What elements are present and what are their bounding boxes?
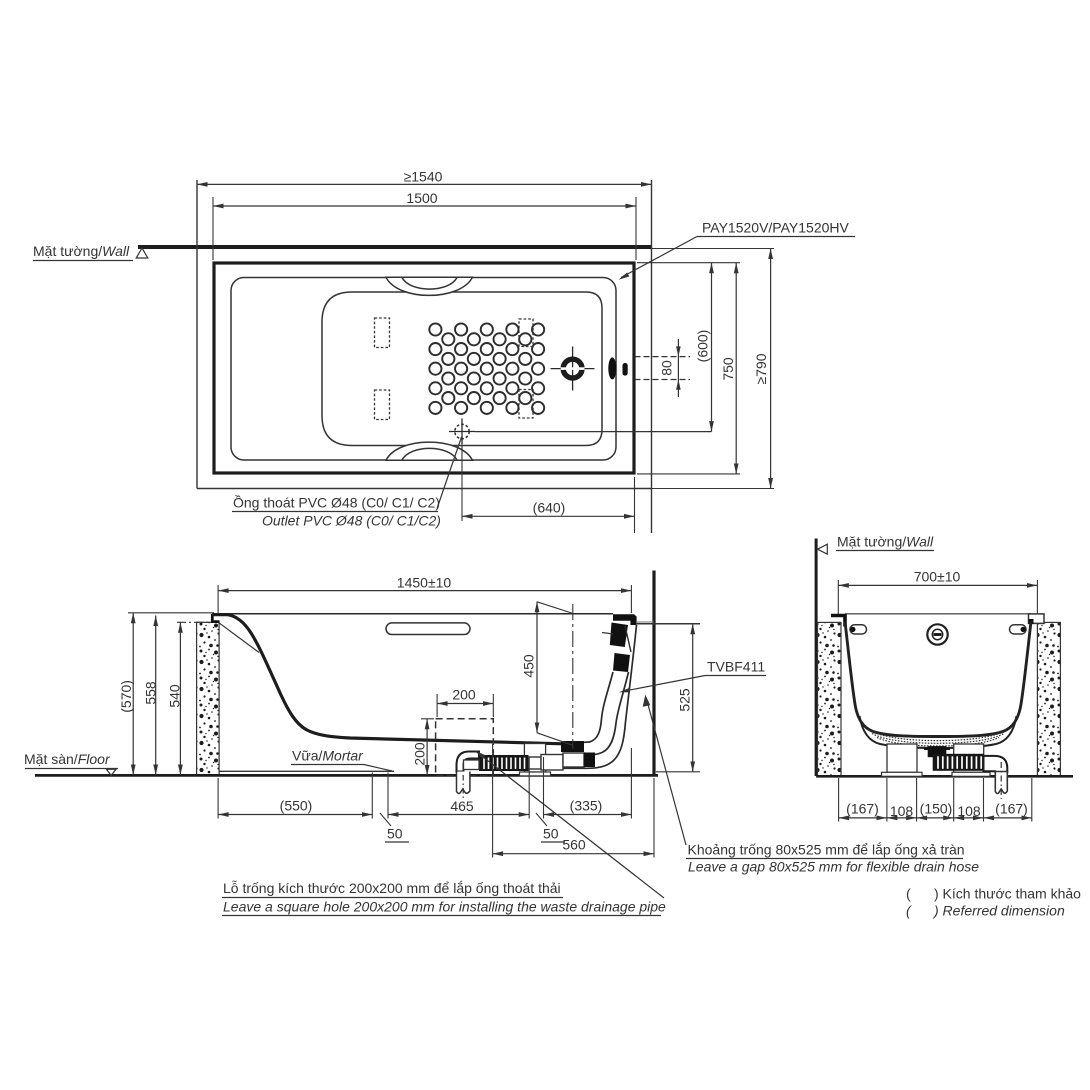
- svg-text:200: 200: [452, 687, 476, 703]
- svg-text:560: 560: [562, 837, 586, 853]
- svg-text:108: 108: [957, 803, 981, 819]
- svg-text:525: 525: [677, 688, 693, 712]
- svg-text:Mặt tường/Wall: Mặt tường/Wall: [837, 534, 934, 550]
- svg-text:Vữa/Mortar: Vữa/Mortar: [292, 748, 364, 764]
- svg-text:50: 50: [387, 826, 403, 842]
- svg-text:(600): (600): [695, 330, 711, 363]
- svg-text:(550): (550): [280, 798, 313, 814]
- svg-text:TVBF411: TVBF411: [707, 659, 765, 675]
- svg-text:(167): (167): [995, 801, 1028, 817]
- svg-text:(150): (150): [920, 801, 953, 817]
- svg-text:PAY1520V/PAY1520HV: PAY1520V/PAY1520HV: [702, 220, 849, 236]
- svg-text:(640): (640): [533, 500, 566, 516]
- svg-text:540: 540: [167, 684, 183, 708]
- svg-text:1450±10: 1450±10: [397, 575, 452, 591]
- svg-text:(167): (167): [846, 801, 879, 817]
- svg-text:465: 465: [450, 798, 474, 814]
- svg-text:Ồng thoát PVC Ø48 (C0/ C1/ C2): Ồng thoát PVC Ø48 (C0/ C1/ C2): [233, 494, 440, 511]
- svg-text:Mặt tường/Wall: Mặt tường/Wall: [33, 243, 130, 259]
- svg-text:50: 50: [543, 826, 559, 842]
- svg-text:( ) Referred dimension: ( ) Referred dimension: [906, 903, 1065, 919]
- svg-text:Leave a gap 80x525 mm for flex: Leave a gap 80x525 mm for flexible drain…: [688, 859, 979, 875]
- svg-text:700±10: 700±10: [914, 569, 961, 585]
- svg-text:Mặt sàn/Floor: Mặt sàn/Floor: [24, 751, 111, 767]
- svg-text:108: 108: [890, 803, 914, 819]
- svg-text:558: 558: [143, 681, 159, 705]
- svg-text:750: 750: [720, 357, 736, 381]
- svg-text:200: 200: [412, 742, 428, 766]
- svg-text:≥790: ≥790: [753, 353, 769, 384]
- svg-text:(335): (335): [570, 798, 603, 814]
- svg-text:(570): (570): [118, 680, 134, 713]
- svg-text:80: 80: [659, 360, 675, 376]
- svg-text:450: 450: [521, 654, 537, 678]
- svg-text:Outlet PVC Ø48 (C0/ C1/C2): Outlet PVC Ø48 (C0/ C1/C2): [262, 513, 441, 529]
- svg-text:≥1540: ≥1540: [404, 169, 443, 185]
- svg-text:Lỗ trống kích thước 200x200 mm: Lỗ trống kích thước 200x200 mm để lắp ốn…: [223, 880, 561, 896]
- svg-text:( ) Kích thước tham khảo: ( ) Kích thước tham khảo: [906, 886, 1081, 902]
- svg-text:Khoảng trống 80x525 mm để lắp: Khoảng trống 80x525 mm để lắp ống xả trà…: [688, 842, 965, 858]
- svg-text:1500: 1500: [406, 190, 437, 206]
- svg-text:Leave a square hole 200x200 m: Leave a square hole 200x200 mm for insta…: [223, 899, 666, 915]
